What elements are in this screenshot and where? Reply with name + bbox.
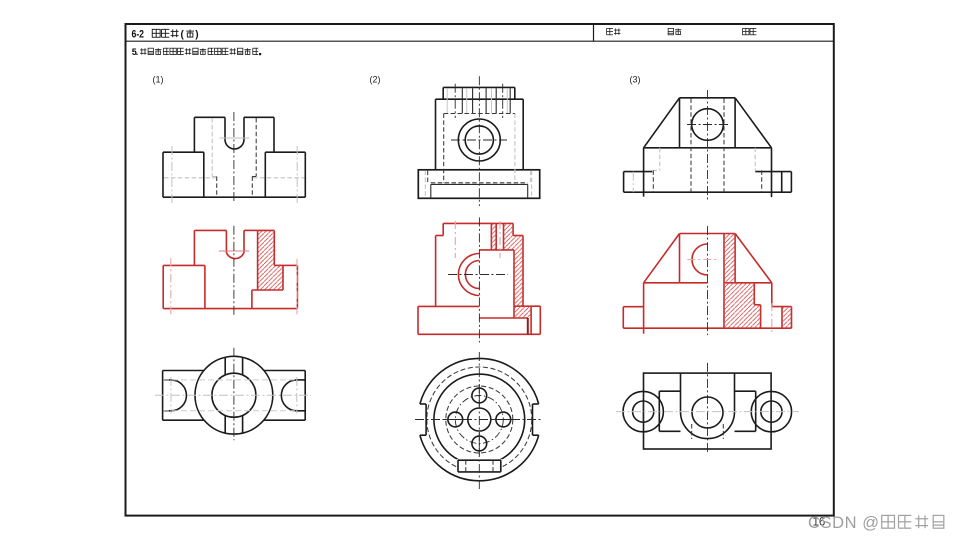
svg-text:6-2: 6-2 <box>132 28 145 40</box>
svg-text:(2): (2) <box>370 75 381 85</box>
svg-text:CSDN @: CSDN @ <box>808 514 879 532</box>
svg-text:(1): (1) <box>153 75 164 85</box>
svg-text:5.: 5. <box>132 47 139 57</box>
svg-text:(3): (3) <box>630 75 641 85</box>
svg-text:): ) <box>195 30 198 41</box>
